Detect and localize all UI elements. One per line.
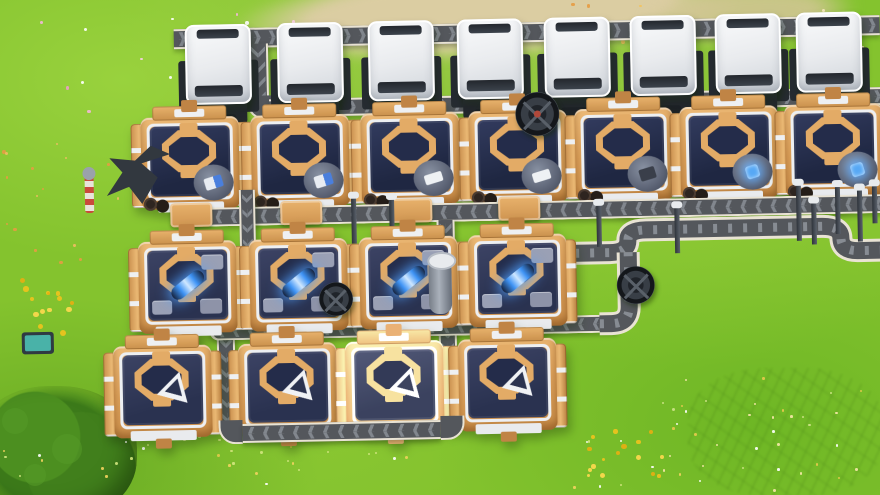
flywheel[interactable] [515,92,560,137]
robotic-arm[interactable] [106,145,171,204]
flywheel[interactable] [319,282,354,317]
flower-speck-br [773,489,776,492]
decor-group [0,0,880,495]
inserter-cylinder[interactable] [428,258,452,314]
factory-layer [0,0,880,495]
flywheel[interactable] [616,266,655,305]
striped-pole [84,175,94,213]
teal-module[interactable] [22,332,54,355]
game-viewport [0,0,880,495]
